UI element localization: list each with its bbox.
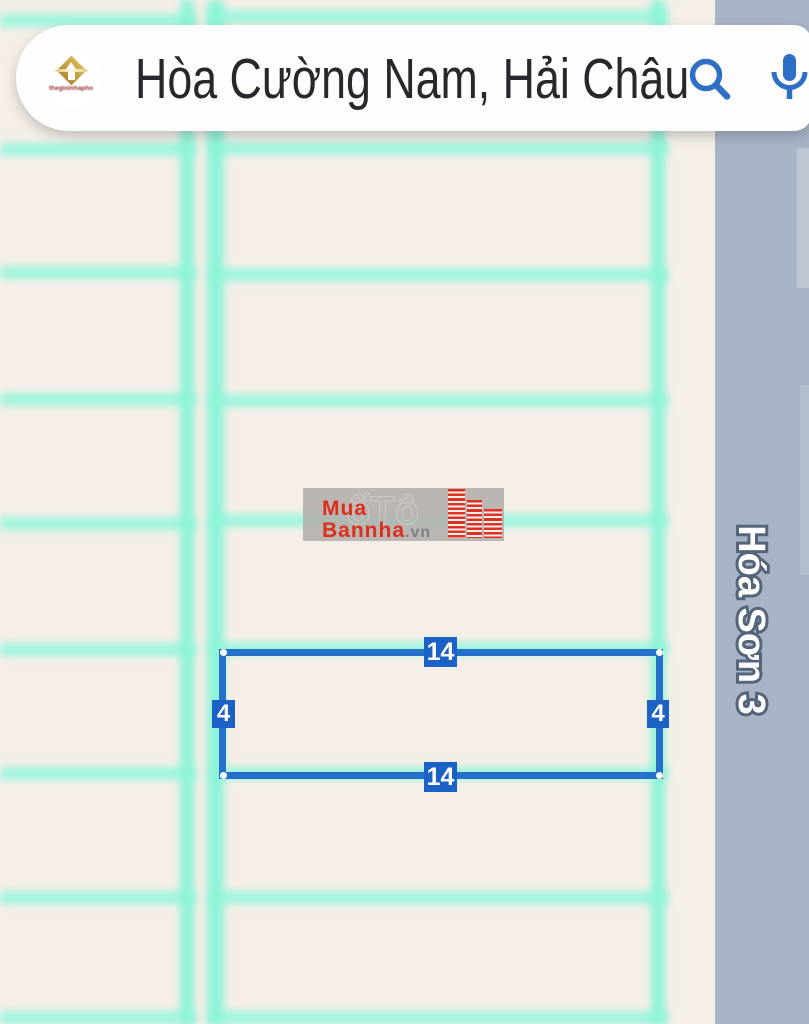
svg-text:Hóa Sơn 3: Hóa Sơn 3 [730, 525, 772, 715]
